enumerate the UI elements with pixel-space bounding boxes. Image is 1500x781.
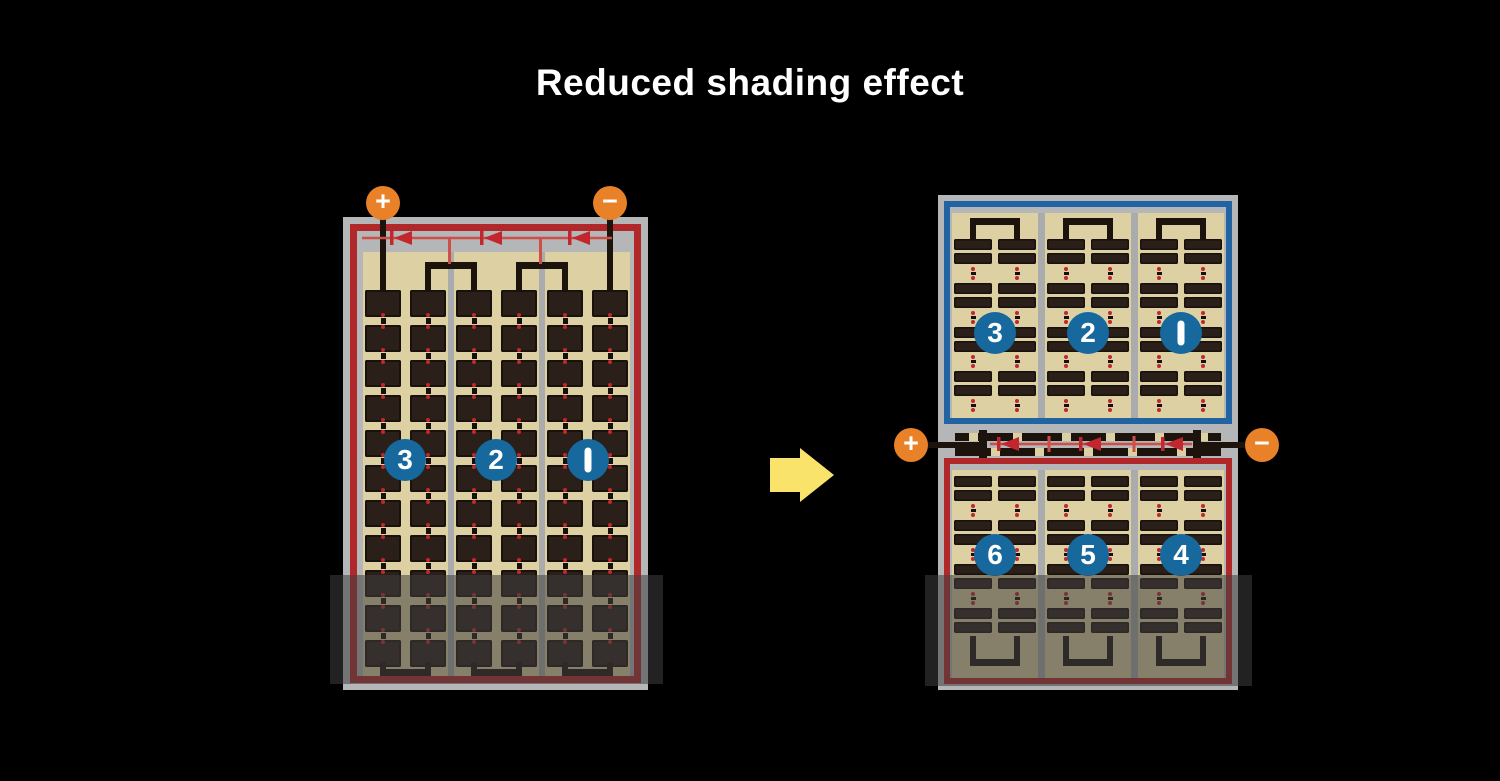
connector-bar [1201, 360, 1206, 363]
solder-dot [608, 348, 612, 352]
solder-dot [563, 535, 567, 539]
cell-connector [470, 488, 478, 504]
solder-dot [1015, 267, 1019, 271]
cell-connector [1013, 355, 1021, 368]
solder-dot [1108, 364, 1112, 368]
solder-dot [608, 558, 612, 562]
solder-dot [426, 430, 430, 434]
cell-connector [424, 523, 432, 539]
solder-dot [971, 276, 975, 280]
cell-connector [424, 558, 432, 574]
solar-cell [954, 253, 992, 264]
cell-connector [561, 488, 569, 504]
cell-connector [1199, 311, 1207, 324]
solder-dot [1064, 513, 1068, 517]
solder-dot [517, 523, 521, 527]
connector-bar [1201, 404, 1206, 407]
connector-bar [381, 563, 386, 569]
solar-cell [1184, 490, 1222, 501]
left-positive-terminal: + [366, 186, 400, 220]
solder-dot [381, 430, 385, 434]
solar-cell [1140, 520, 1178, 531]
connector-bar [426, 493, 431, 499]
minus-icon: − [602, 186, 618, 217]
connector-bar [608, 318, 613, 324]
solder-dot [381, 488, 385, 492]
solder-dot [1157, 320, 1161, 324]
string-number: 3 [397, 444, 413, 476]
solder-dot [563, 570, 567, 574]
cell-connector [1062, 267, 1070, 280]
string-number: 6 [987, 539, 1003, 571]
connector-bar [1108, 360, 1113, 363]
solder-dot [426, 395, 430, 399]
solder-dot [1015, 513, 1019, 517]
cell-connector [515, 523, 523, 539]
cell-connector [1062, 504, 1070, 517]
cell-connector [515, 383, 523, 399]
solder-dot [1108, 513, 1112, 517]
junction-connector [979, 430, 987, 458]
cell-connector [969, 399, 977, 412]
solar-cell [1047, 297, 1085, 308]
solder-dot [1108, 399, 1112, 403]
string-number: 1 [580, 444, 596, 476]
connector-bar [426, 318, 431, 324]
connector-bar [1064, 509, 1069, 512]
solder-dot [1064, 320, 1068, 324]
solder-dot [1064, 364, 1068, 368]
solder-dot [563, 558, 567, 562]
string-number: 5 [1080, 539, 1096, 571]
connector-bar [1157, 272, 1162, 275]
connector-bar [1157, 316, 1162, 319]
connector-bar [608, 528, 613, 534]
solder-dot [381, 325, 385, 329]
cell-connector [561, 348, 569, 364]
solder-dot [1108, 320, 1112, 324]
connector-bar [426, 423, 431, 429]
cell-connector [424, 488, 432, 504]
solder-dot [1064, 408, 1068, 412]
solder-dot [1015, 276, 1019, 280]
connector-bar [426, 388, 431, 394]
solder-dot [1064, 399, 1068, 403]
solar-cell [1140, 371, 1178, 382]
solder-dot [426, 465, 430, 469]
left-negative-terminal: − [593, 186, 627, 220]
cell-connector [969, 504, 977, 517]
right-bottom-string-5-badge: 5 [1067, 534, 1109, 576]
solder-dot [381, 418, 385, 422]
solar-cell [1091, 371, 1129, 382]
solar-cell [1047, 490, 1085, 501]
solder-dot [472, 523, 476, 527]
panel-artwork [0, 0, 1500, 781]
busbar [1156, 218, 1162, 239]
solder-dot [472, 558, 476, 562]
connector-bar [472, 528, 477, 534]
connector-bar [971, 509, 976, 512]
connector-bar [426, 353, 431, 359]
solder-dot [1015, 320, 1019, 324]
connector-bar [1108, 509, 1113, 512]
cell-connector [969, 267, 977, 280]
solar-cell [1184, 385, 1222, 396]
solder-dot [608, 465, 612, 469]
solar-cell [1091, 283, 1129, 294]
solar-cell [998, 385, 1036, 396]
connector-bar [1108, 272, 1113, 275]
solder-dot [971, 364, 975, 368]
terminal-wire [926, 442, 982, 448]
diagram-canvas: Reduced shading effect 3 2 1 3 2 1 6 5 4… [0, 0, 1500, 781]
arrow-right-icon [768, 446, 838, 506]
solder-dot [1157, 399, 1161, 403]
solar-cell [1047, 253, 1085, 264]
cell-connector [1062, 355, 1070, 368]
solder-dot [563, 488, 567, 492]
solder-dot [426, 360, 430, 364]
busbar [1063, 218, 1113, 225]
solder-dot [1108, 311, 1112, 315]
solder-dot [563, 395, 567, 399]
cell-connector [1013, 267, 1021, 280]
solder-dot [381, 535, 385, 539]
bypass-diode-wire [362, 228, 612, 274]
solder-dot [1064, 267, 1068, 271]
busbar [970, 218, 1020, 225]
solder-dot [608, 325, 612, 329]
solder-dot [517, 465, 521, 469]
solder-dot [563, 500, 567, 504]
solder-dot [472, 488, 476, 492]
solder-dot [472, 570, 476, 574]
solder-dot [472, 383, 476, 387]
solder-dot [1108, 267, 1112, 271]
cell-connector [1199, 355, 1207, 368]
solder-dot [1157, 267, 1161, 271]
connector-bar [608, 563, 613, 569]
solder-dot [608, 535, 612, 539]
solder-dot [517, 418, 521, 422]
solder-dot [1201, 267, 1205, 271]
connector-bar [608, 423, 613, 429]
connector-bar [426, 563, 431, 569]
solder-dot [517, 325, 521, 329]
solder-dot [517, 535, 521, 539]
solar-cell [998, 283, 1036, 294]
connector-bar [426, 528, 431, 534]
connector-bar [517, 388, 522, 394]
solder-dot [1064, 276, 1068, 280]
cell-connector [379, 488, 387, 504]
solder-dot [472, 313, 476, 317]
solder-dot [971, 504, 975, 508]
connector-bar [381, 493, 386, 499]
connector-bar [971, 404, 976, 407]
solder-dot [1157, 408, 1161, 412]
solar-cell [1184, 371, 1222, 382]
solder-dot [1015, 364, 1019, 368]
cell-connector [515, 418, 523, 434]
cell-connector [379, 348, 387, 364]
solar-cell [998, 239, 1036, 250]
diode-icon [394, 231, 412, 245]
string-number: 1 [1173, 317, 1189, 349]
solar-cell [998, 253, 1036, 264]
left-shading-overlay [330, 575, 663, 684]
terminal-wire [1196, 442, 1252, 448]
connector-bar [1064, 272, 1069, 275]
connector-bar [472, 493, 477, 499]
connector-bar [426, 458, 431, 464]
cell-connector [424, 348, 432, 364]
solder-dot [426, 418, 430, 422]
connector-bar [472, 423, 477, 429]
solder-dot [1157, 513, 1161, 517]
connector-bar [563, 563, 568, 569]
cell-connector [1199, 504, 1207, 517]
solder-dot [1201, 504, 1205, 508]
busbar [1200, 218, 1206, 239]
solder-dot [472, 500, 476, 504]
solar-cell [954, 520, 992, 531]
cell-connector [561, 313, 569, 329]
solder-dot [1108, 355, 1112, 359]
cell-connector [1155, 504, 1163, 517]
cell-connector [606, 348, 614, 364]
solder-dot [426, 348, 430, 352]
connector-bar [608, 353, 613, 359]
cell-connector [470, 418, 478, 434]
solder-dot [563, 360, 567, 364]
solar-cell [1091, 520, 1129, 531]
connector-bar [563, 353, 568, 359]
solar-cell [954, 476, 992, 487]
connector-bar [1108, 404, 1113, 407]
solar-cell [998, 520, 1036, 531]
connector-bar [472, 353, 477, 359]
minus-icon: − [1254, 428, 1270, 459]
column-divider [1038, 213, 1045, 418]
solar-cell [1047, 283, 1085, 294]
solder-dot [381, 360, 385, 364]
solar-cell [1184, 297, 1222, 308]
solder-dot [1201, 320, 1205, 324]
connector-bar [1064, 404, 1069, 407]
solder-dot [426, 500, 430, 504]
junction-connector [1193, 430, 1201, 458]
busbar-gap [969, 433, 978, 441]
solder-dot [1157, 355, 1161, 359]
cell-connector [606, 523, 614, 539]
cell-connector [561, 383, 569, 399]
connector-bar [517, 458, 522, 464]
solder-dot [971, 320, 975, 324]
solder-dot [971, 267, 975, 271]
busbar [1063, 218, 1069, 239]
cell-connector [1062, 399, 1070, 412]
cell-connector [606, 488, 614, 504]
solder-dot [517, 453, 521, 457]
solar-cell [954, 239, 992, 250]
solar-cell [954, 490, 992, 501]
solder-dot [1064, 355, 1068, 359]
solder-dot [608, 500, 612, 504]
solder-dot [1064, 504, 1068, 508]
cell-connector [379, 313, 387, 329]
diode-icon [1001, 437, 1019, 451]
cell-connector [470, 313, 478, 329]
connector-bar [472, 563, 477, 569]
left-string-2-badge: 2 [475, 439, 517, 481]
solar-cell [954, 297, 992, 308]
right-top-string-2-badge: 2 [1067, 312, 1109, 354]
connector-bar [1157, 404, 1162, 407]
solder-dot [517, 348, 521, 352]
cell-connector [424, 383, 432, 399]
solder-dot [517, 360, 521, 364]
solar-cell [1184, 520, 1222, 531]
solder-dot [472, 430, 476, 434]
connector-bar [517, 493, 522, 499]
cell-connector [379, 418, 387, 434]
solder-dot [563, 418, 567, 422]
solder-dot [1201, 364, 1205, 368]
cell-connector [561, 418, 569, 434]
solder-dot [1201, 355, 1205, 359]
connector-bar [381, 318, 386, 324]
solder-dot [517, 558, 521, 562]
column-divider [1131, 213, 1138, 418]
solder-dot [1015, 311, 1019, 315]
solder-dot [1157, 311, 1161, 315]
solder-dot [472, 535, 476, 539]
connector-bar [1064, 360, 1069, 363]
solder-dot [1157, 276, 1161, 280]
solder-dot [1201, 399, 1205, 403]
solder-dot [472, 325, 476, 329]
connector-bar [1157, 509, 1162, 512]
solder-dot [426, 453, 430, 457]
solar-cell [954, 385, 992, 396]
connector-bar [563, 493, 568, 499]
solder-dot [1108, 276, 1112, 280]
cell-connector [561, 558, 569, 574]
cell-connector [1013, 504, 1021, 517]
solder-dot [608, 418, 612, 422]
solder-dot [608, 488, 612, 492]
cell-connector [515, 313, 523, 329]
solder-dot [1064, 311, 1068, 315]
solar-cell [1140, 253, 1178, 264]
solder-dot [381, 500, 385, 504]
bypass-diode-wire [990, 434, 1192, 480]
busbar [1156, 218, 1206, 225]
solar-cell [998, 490, 1036, 501]
right-positive-terminal: + [894, 428, 928, 462]
cell-connector [379, 523, 387, 539]
solder-dot [608, 383, 612, 387]
solder-dot [381, 523, 385, 527]
solar-cell [1140, 239, 1178, 250]
solar-cell [1140, 297, 1178, 308]
cell-connector [1199, 399, 1207, 412]
cell-connector [606, 558, 614, 574]
right-shading-overlay [925, 575, 1252, 686]
cell-connector [1013, 311, 1021, 324]
connector-bar [971, 316, 976, 319]
connector-bar [472, 318, 477, 324]
connector-bar [517, 318, 522, 324]
cell-connector [1106, 504, 1114, 517]
connector-bar [1015, 360, 1020, 363]
cell-connector [470, 558, 478, 574]
solar-cell [1140, 385, 1178, 396]
solder-dot [608, 570, 612, 574]
connector-bar [381, 528, 386, 534]
cell-connector [561, 523, 569, 539]
solar-cell [1140, 283, 1178, 294]
cell-connector [1199, 267, 1207, 280]
cell-connector [470, 348, 478, 364]
solder-dot [1201, 408, 1205, 412]
connector-bar [517, 563, 522, 569]
connector-bar [563, 528, 568, 534]
busbar [1014, 218, 1020, 239]
cell-connector [606, 418, 614, 434]
right-negative-terminal: − [1245, 428, 1279, 462]
solder-dot [381, 313, 385, 317]
connector-bar [517, 423, 522, 429]
solder-dot [472, 418, 476, 422]
solar-cell [1091, 297, 1129, 308]
solder-dot [563, 465, 567, 469]
cell-connector [969, 355, 977, 368]
cell-connector [1013, 399, 1021, 412]
solder-dot [563, 348, 567, 352]
right-top-string-3-badge: 3 [974, 312, 1016, 354]
solder-dot [563, 383, 567, 387]
solder-dot [971, 355, 975, 359]
left-string-3-badge: 3 [384, 439, 426, 481]
solar-cell [998, 297, 1036, 308]
cell-connector [1155, 355, 1163, 368]
connector-bar [1201, 272, 1206, 275]
solder-dot [971, 311, 975, 315]
cell-connector [424, 313, 432, 329]
connector-bar [608, 493, 613, 499]
connector-bar [563, 318, 568, 324]
solder-dot [608, 395, 612, 399]
diode-icon [1165, 437, 1183, 451]
solder-dot [517, 488, 521, 492]
cell-connector [515, 558, 523, 574]
diode-icon [484, 231, 502, 245]
solar-cell [954, 283, 992, 294]
solder-dot [517, 430, 521, 434]
solder-dot [1201, 276, 1205, 280]
connector-bar [563, 388, 568, 394]
solder-dot [1108, 408, 1112, 412]
string-number: 4 [1173, 539, 1189, 571]
string-number: 2 [488, 444, 504, 476]
cell-connector [470, 383, 478, 399]
solder-dot [971, 399, 975, 403]
cell-connector [379, 383, 387, 399]
connector-bar [517, 528, 522, 534]
